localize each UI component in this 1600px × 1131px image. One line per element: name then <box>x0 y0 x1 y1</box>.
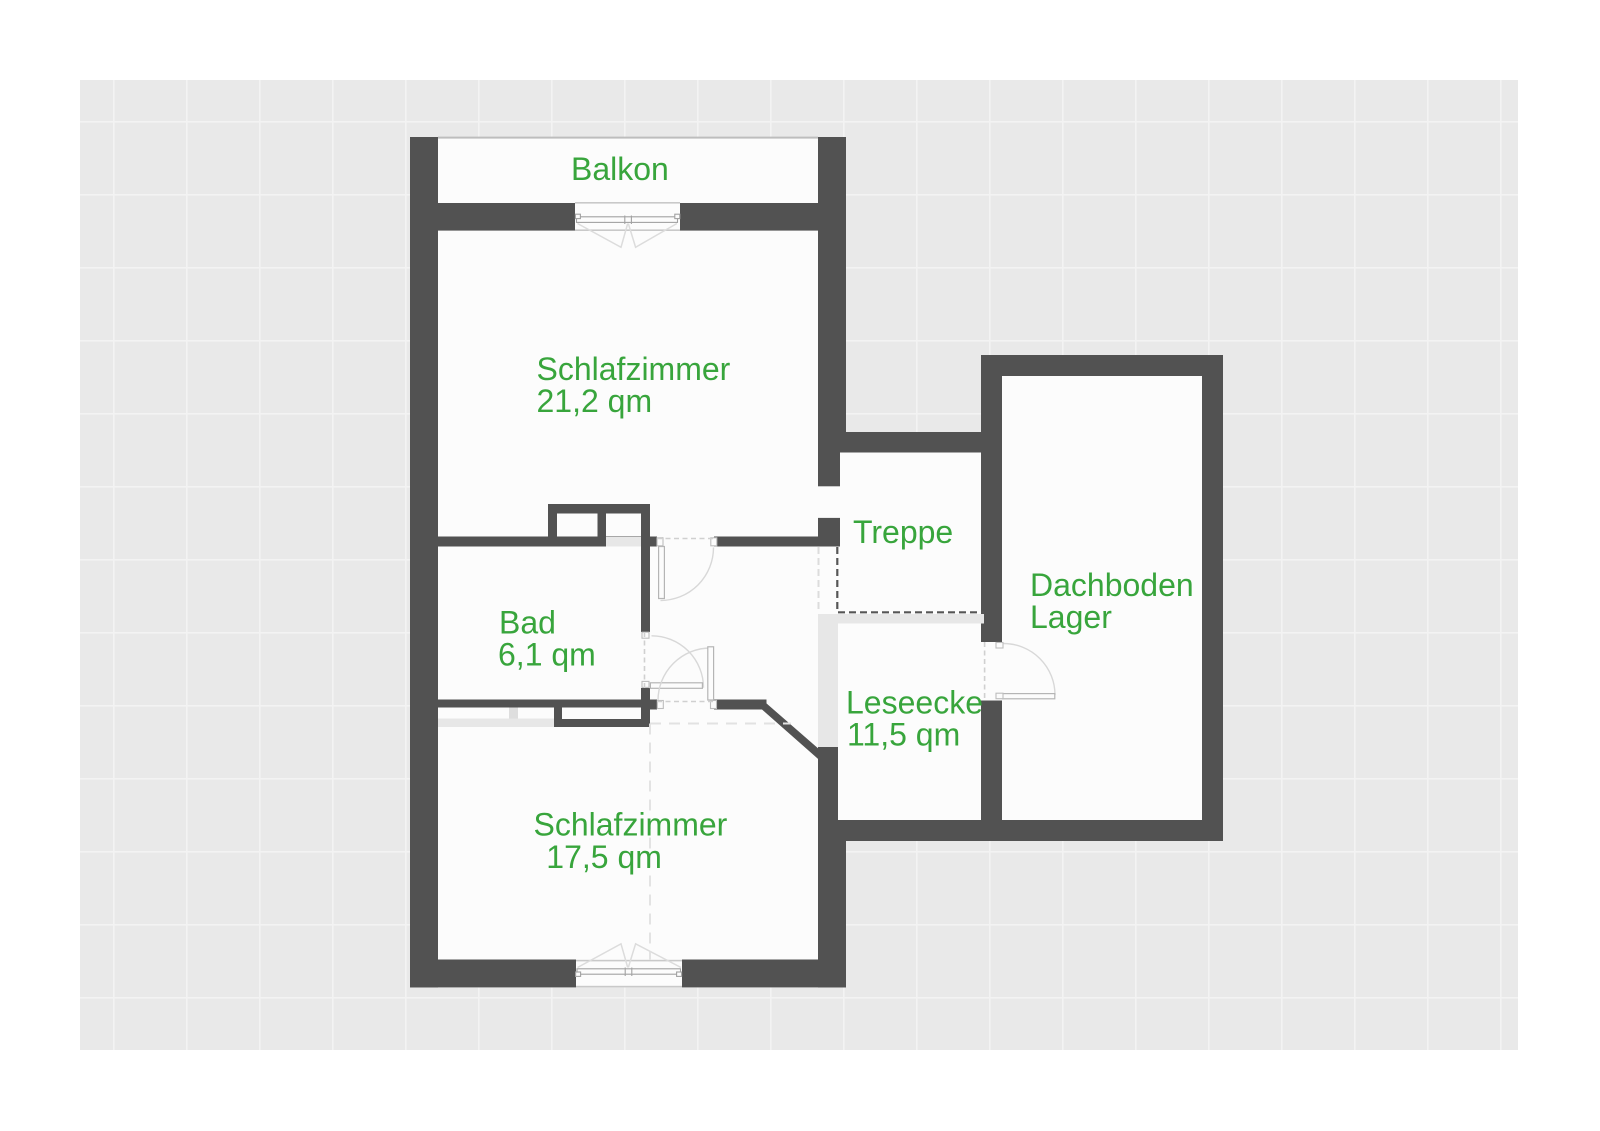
svg-text:Leseecke: Leseecke <box>846 685 983 721</box>
svg-text:6,1 qm: 6,1 qm <box>498 636 596 672</box>
svg-text:Dachboden: Dachboden <box>1030 567 1194 603</box>
svg-text:Balkon: Balkon <box>571 151 669 187</box>
svg-text:21,2 qm: 21,2 qm <box>537 383 653 419</box>
svg-text:Treppe: Treppe <box>853 514 953 550</box>
svg-text:Bad: Bad <box>499 604 556 640</box>
svg-text:Schlafzimmer: Schlafzimmer <box>534 807 728 843</box>
svg-text:Lager: Lager <box>1030 599 1112 635</box>
svg-text:17,5 qm: 17,5 qm <box>546 839 662 875</box>
svg-text:11,5 qm: 11,5 qm <box>847 717 960 753</box>
svg-text:Schlafzimmer: Schlafzimmer <box>537 351 731 387</box>
